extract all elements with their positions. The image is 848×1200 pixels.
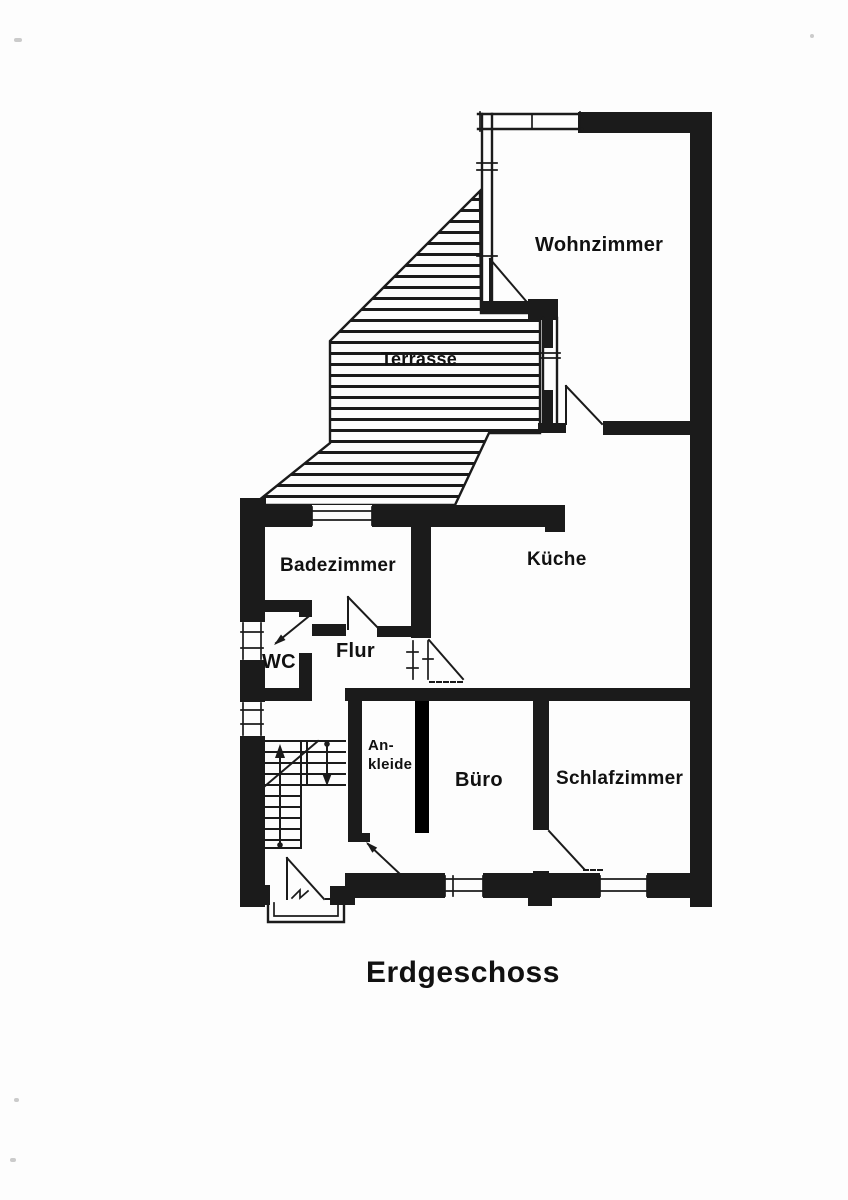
window-bad-gap xyxy=(312,505,372,527)
room-label-wohnzimmer: Wohnzimmer xyxy=(535,234,663,257)
wall-mid-left xyxy=(240,688,312,701)
room-label-terrasse: Terrasse xyxy=(381,349,457,370)
wall-ankleide-west xyxy=(348,701,362,839)
room-label-kueche: Küche xyxy=(527,549,587,571)
door-badezimmer-swing xyxy=(348,597,380,630)
wall-north-endblock xyxy=(545,505,565,532)
door-schlafzimmer-swing xyxy=(549,831,584,869)
entry-step-inner xyxy=(274,903,338,916)
wall-wohnzimmer-kueche xyxy=(603,421,692,435)
room-label-buero: Büro xyxy=(455,769,503,792)
room-label-ankleide: An- kleide xyxy=(368,737,412,775)
terrasse-outline xyxy=(253,191,540,505)
stair-arrow-dot xyxy=(324,741,330,747)
window-column-fill xyxy=(544,390,553,424)
wall-ankleide-stub xyxy=(348,833,370,842)
window-column-fill xyxy=(544,318,553,348)
scan-speck xyxy=(14,1098,19,1102)
window-column-base xyxy=(538,423,566,433)
wall-ankleide-buero-highlight xyxy=(415,701,429,833)
scan-speck xyxy=(10,1158,16,1162)
wall-bad-east xyxy=(411,505,431,638)
scan-speck xyxy=(14,38,22,42)
wall-bad-south-left xyxy=(312,624,346,636)
floorplan-page: Wohnzimmer Terrasse Küche Badezimmer WC … xyxy=(0,0,848,1200)
stairs xyxy=(255,741,345,848)
room-label-badezimmer: Badezimmer xyxy=(280,555,396,577)
wall-wc-right-upper xyxy=(299,600,312,617)
door-wohnzimmer-kueche-swing xyxy=(566,386,602,424)
door-terrasse-swing xyxy=(490,259,526,301)
entry-step-outer xyxy=(268,903,344,922)
wall-wohnzimmer-notch xyxy=(481,301,531,313)
room-label-flur: Flur xyxy=(336,640,375,663)
wall-bottom-right xyxy=(647,873,712,898)
room-label-schlafzimmer: Schlafzimmer xyxy=(556,768,683,790)
wall-bottom-mid xyxy=(483,873,600,898)
room-label-wc: WC xyxy=(262,651,296,674)
door-entry-threshold xyxy=(292,890,308,898)
wall-right xyxy=(690,112,712,907)
plan-title: Erdgeschoss xyxy=(366,956,560,990)
wall-entry-left xyxy=(240,885,270,905)
scan-speck xyxy=(810,34,814,38)
wall-mid-main xyxy=(345,688,692,701)
stair-arrow-dot xyxy=(277,842,283,848)
wall-buero-schlafzimmer xyxy=(533,701,549,830)
wall-north-mid xyxy=(372,505,545,527)
floorplan-drawing xyxy=(0,0,848,1200)
wall-bottom-left xyxy=(345,873,445,898)
wall-entry-right xyxy=(330,886,355,905)
wall-bottom-stub xyxy=(528,898,552,906)
wall-bad-south-right xyxy=(377,626,412,637)
door-kueche-swing xyxy=(429,640,463,679)
